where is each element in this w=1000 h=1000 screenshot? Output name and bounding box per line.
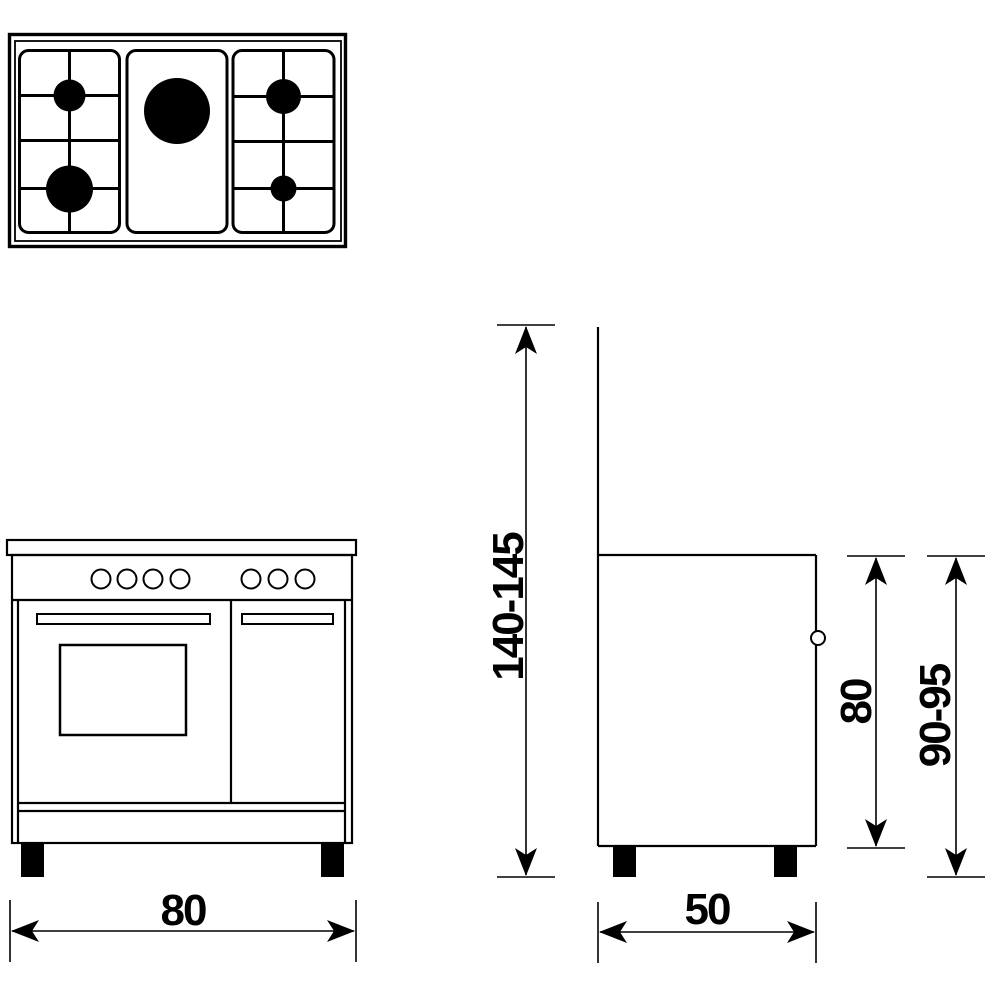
dim-label-body-height: 80	[832, 679, 881, 724]
burner-right-bottom-icon	[271, 176, 297, 202]
oven-handle-left	[37, 614, 210, 624]
oven-window	[60, 645, 186, 735]
range-cooker-dimension-diagram: 140-145 80 90-95 80 50	[0, 0, 1000, 1000]
knob-icon	[92, 570, 111, 589]
dim-width: 80	[10, 886, 356, 962]
side-foot-right	[774, 846, 797, 877]
dim-label-depth: 50	[685, 885, 730, 934]
side-handle-knob-icon	[811, 631, 825, 645]
burner-left-top-icon	[54, 80, 86, 112]
front-foot-right	[321, 843, 344, 877]
knob-icon	[118, 570, 137, 589]
knob-icon	[242, 570, 261, 589]
knob-icon	[171, 570, 190, 589]
side-view	[598, 327, 825, 877]
oven-handle-right	[242, 614, 333, 624]
dim-label-working-height: 90-95	[911, 663, 960, 767]
worktop-edge	[7, 540, 356, 555]
knob-icon	[269, 570, 288, 589]
cooker-body-front	[12, 555, 352, 843]
burner-left-bottom-icon	[46, 166, 93, 213]
dim-label-width: 80	[161, 886, 206, 935]
knob-icon	[296, 570, 315, 589]
dim-depth: 50	[598, 885, 816, 963]
side-foot-left	[613, 846, 636, 877]
dim-working-height: 90-95	[911, 556, 985, 877]
knob-icon	[144, 570, 163, 589]
control-knobs	[92, 570, 315, 589]
pan-support-right	[233, 51, 334, 233]
technical-drawing-canvas: 140-145 80 90-95 80 50	[0, 0, 1000, 1000]
burner-right-top-icon	[266, 79, 301, 114]
front-view	[7, 540, 356, 877]
dim-label-total-height: 140-145	[484, 532, 533, 681]
front-foot-left	[21, 843, 44, 877]
dim-total-height: 140-145	[484, 325, 555, 877]
hob-top-view	[10, 35, 346, 247]
dim-body-height: 80	[832, 556, 905, 848]
burner-center-large-icon	[144, 78, 210, 144]
